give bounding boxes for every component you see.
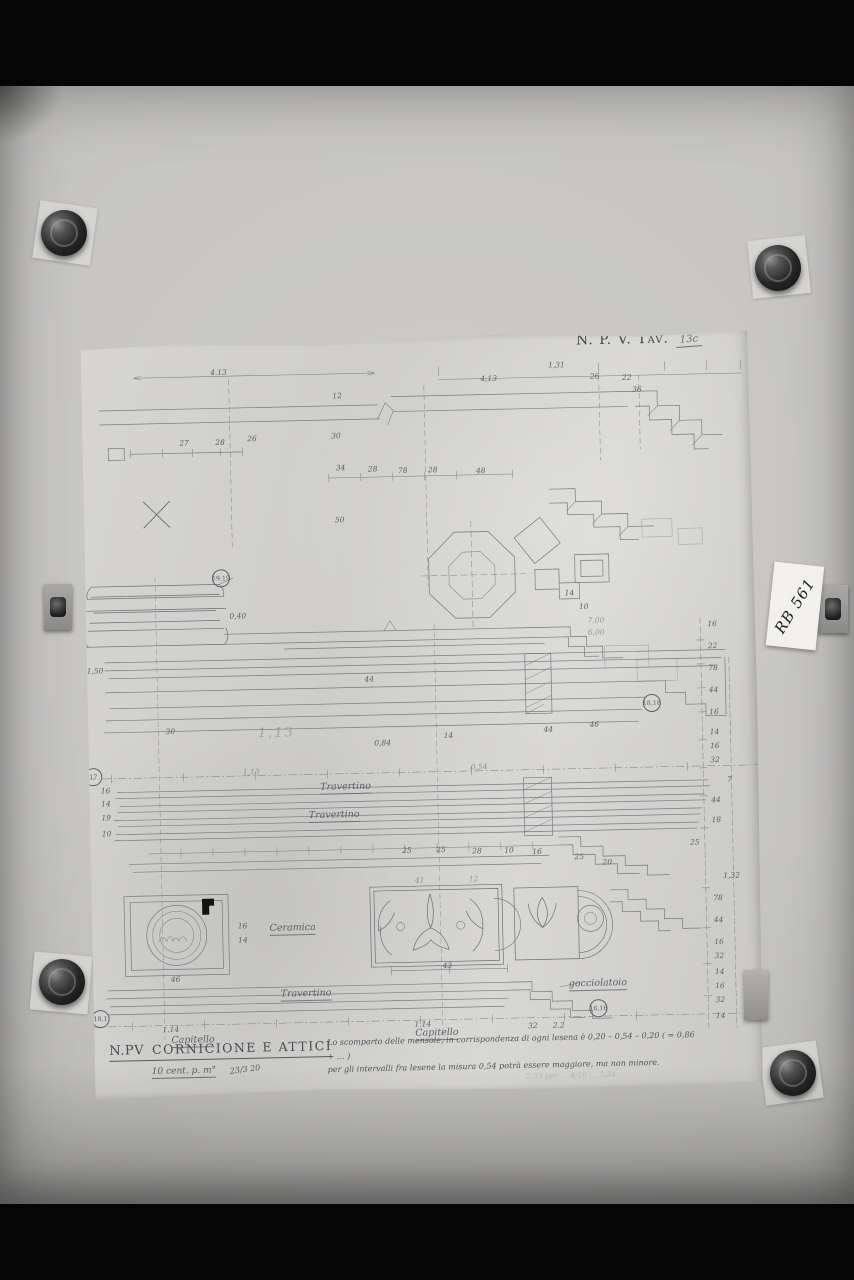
reference-bubble: 16,16 [589,999,607,1017]
dimension-label: 36 [632,385,642,394]
dimension-label: 28 [215,438,225,447]
dimension-label: 32 [715,995,725,1004]
dimension-label: 25 [402,846,412,855]
plate-label: N. P. V. Tav. [576,331,669,349]
dimension-label: 12 [332,391,342,400]
reference-bubble: 18,18 [643,694,661,712]
clip-left-middle [44,584,72,630]
dimension-label: 1,32 [723,871,740,880]
dimension-label: 18 [712,815,722,824]
dimension-label: 44 [364,675,374,684]
dimension-label: 0,84 [374,738,391,747]
dimension-label: 28 [472,846,482,855]
dimension-label: 14 [716,1011,726,1020]
dimension-label: 1,13 [258,725,295,741]
dimension-label: 48 [476,466,486,475]
archive-label: RB 561 [766,562,825,651]
dimension-label: 44 [714,915,724,924]
material-label: Travertino [281,988,332,1002]
dimension-label: 14 [565,588,575,597]
dimension-label: 25 [574,852,584,861]
plate-number-value: 13c [676,333,703,348]
dimension-label: 78 [398,466,408,475]
clip-magnet-top-right [755,245,801,291]
drawing-title: CORNICIONE E ATTICI [152,1038,332,1057]
dimension-label: 28 [368,464,378,473]
reference-bubble: 19,19 [212,569,230,587]
dimension-label: 2.2 [553,1020,565,1029]
project-code: N.PV [109,1043,144,1059]
dimension-label: 50 [335,515,345,524]
dimension-label: 41 [415,875,425,884]
dimension-label: 6,00 [588,627,605,636]
dimension-label: 19 [101,813,111,822]
dimension-label: 78 [713,893,723,902]
dimension-label: 78 [708,663,718,672]
dimension-label: 46 [589,720,599,729]
dimension-label: 43 [443,961,453,970]
scale-note: 10 cent. p. m° [152,1066,217,1079]
dimension-label: 12 [469,874,479,883]
dimension-label: 14 [444,731,454,740]
dimension-label: 16 [707,619,717,628]
dimension-label: 20 [602,857,612,866]
dimension-label: 1,50 [87,666,104,675]
drawing-sheet: 4.13124,131,3126223627282630342878284850… [78,327,766,1101]
dimension-label: 22 [708,641,718,650]
dimension-label: 25 [690,837,700,846]
dimension-label: 1,31 [548,360,565,369]
dimension-label: 14 [715,967,725,976]
dimension-label: 34 [336,463,346,472]
dimension-label: 28 [428,465,438,474]
dimension-label: 16 [101,786,111,795]
dimension-label: 16 [532,847,542,856]
plate-number: N. P. V. Tav. 13c [576,330,703,350]
archive-label-text: RB 561 [771,575,819,637]
dimension-label: 16 [238,921,248,930]
dimension-label: 10 [102,829,112,838]
archival-photograph-frame: 4.13124,131,3126223627282630342878284850… [0,0,854,1280]
dimension-label: 44 [711,795,721,804]
dimension-label: 32 [714,951,724,960]
dimension-label: 22 [622,373,632,382]
dimension-label: 0,54 [471,762,488,771]
dimension-label: 26 [590,372,600,381]
dimension-label: 10 [579,602,589,611]
dimension-label: 32 [710,755,720,764]
dimension-label: 32 [528,1021,538,1030]
dimension-label: 1.14 [162,1025,179,1034]
dimension-label: 25 [436,845,446,854]
clip-magnet-bottom-left [39,959,85,1005]
material-label: gocciolatoio [569,977,627,991]
dimension-label: 30 [165,727,175,736]
dimension-label: 44 [709,685,719,694]
dimension-label: 27 [179,439,189,448]
clip-bar-bottom-right [744,970,768,1020]
material-label: Ceramica [269,922,315,936]
dimension-label: 14 [710,727,720,736]
reference-bubble: 18,1 [91,1010,109,1028]
clip-magnet-top-left [41,210,87,256]
material-label: Travertino [309,809,360,823]
clip-magnet-bottom-right [770,1050,816,1096]
dimension-label: 1,13 [243,767,260,776]
clip-right-middle [818,585,848,633]
dimension-label: 0,40 [229,611,246,620]
scale-line: 10 cent. p. m° 23/3 20 [152,1065,261,1079]
date-note: 23/3 20 [230,1063,262,1076]
dimension-label: 16 [714,937,724,946]
dimension-label: 26 [247,434,257,443]
dimension-label: 16 [715,981,725,990]
dimension-label: 30 [331,431,341,440]
dimension-label: 7 [727,775,732,784]
dimension-label: 14 [238,935,248,944]
photograph: 4.13124,131,3126223627282630342878284850… [0,86,854,1204]
dimension-label: 46 [171,975,181,984]
material-label: Travertino [320,781,371,795]
dimension-label: 4,13 [480,374,497,383]
dimension-label: 4.13 [210,368,227,377]
dimension-label: 16 [709,707,719,716]
dimension-label: 44 [543,725,553,734]
reference-bubble: 17 [84,768,102,786]
annotation-layer: 4.13124,131,3126223627282630342878284850… [78,327,766,1101]
dimension-label: 10 [504,846,514,855]
dimension-label: 16 [710,741,720,750]
faint-note: 2,33 per … 4/10 … 7,34 [526,1070,616,1081]
dimension-label: 14 [101,799,111,808]
notes-block: Lo scomparto delle mensole, in corrispon… [327,1028,700,1077]
dimension-label: 7,00 [588,616,605,625]
